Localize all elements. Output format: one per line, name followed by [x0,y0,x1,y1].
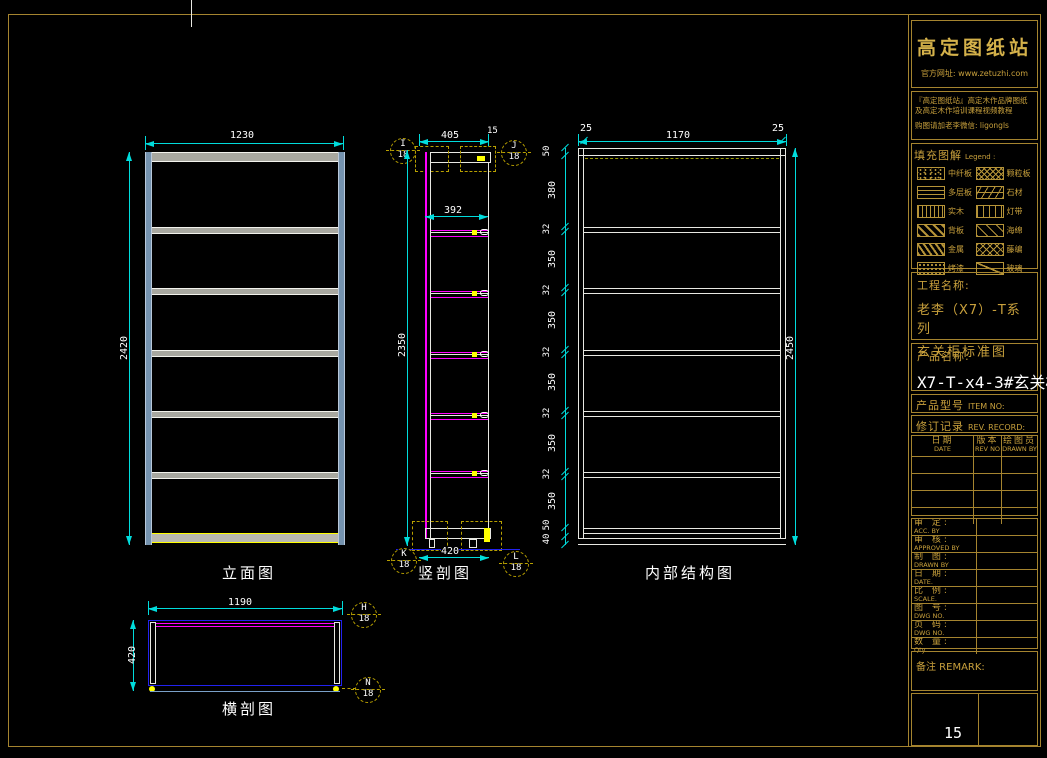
legend-item: 背板 [917,224,974,237]
hdash-pattern-swatch [917,186,945,199]
info-row: 图 号:DWG NO. [912,603,1037,620]
elevation-base [152,533,338,543]
site-logo: 高定图纸站 [912,33,1037,60]
remark-box: 备注 REMARK: [911,651,1038,691]
section-bottom-dim: 420 [441,547,459,557]
legend-item: 石材 [976,186,1033,199]
info-label-en: ACC. BY [914,528,976,535]
crop-mark [191,0,192,27]
product-value: X7-T-x4-3#玄关柜 [917,369,1032,393]
info-row: 页 码:DWG NO. [912,620,1037,637]
hatch-pattern-swatch [917,224,945,237]
elevation-left-panel [145,152,152,545]
info-row-label: 日 期:DATE. [912,570,977,586]
promo-line-3: 购图请加老李微信: ligongls [915,121,1034,131]
rev-empty-row [912,473,1037,490]
promo-line-2: 及高定木作培训课程视频教程 [915,106,1034,116]
project-box: 工程名称: 老李（X7）-T系列 玄关柜标准图 [911,272,1038,340]
section-top-dim: 405 [441,131,459,141]
legend-item: 灯带 [976,205,1033,218]
rev-table: 日期DATE 版本REV NO 绘图员DRAWN BY [911,435,1038,516]
plan-front-line [150,691,340,692]
border-bottom [8,746,1040,747]
border-left [8,14,9,747]
rev-record-en: REV. RECORD: [968,423,1025,432]
mesh-pattern-swatch [976,243,1004,256]
info-label-en: DWG NO. [914,613,976,620]
detail-balloon-N: N18 [355,677,381,703]
internal-left-wall [578,148,584,545]
promo-box: 『高定图纸站』高定木作品牌图纸 及高定木作培训课程视频教程 购图请加老李微信: … [911,91,1038,140]
chain-dim: 32 [542,276,552,304]
legend-item: 藤编 [976,243,1033,256]
chain-dim: 380 [548,176,558,204]
product-label: 产品名称: [917,348,1032,364]
info-value-cell [977,536,1037,552]
plan-left-panel [150,622,156,684]
detail-balloon-K: K18 [391,548,417,574]
info-row-label: 比 例:SCALE. [912,587,977,603]
rev-empty-cell [912,491,974,507]
item-no-box: 产品型号 ITEM NO: [911,394,1038,413]
section-height-dim: 2350 [398,325,408,365]
info-row-label: 图 号:DWG NO. [912,604,977,620]
scatter-pattern-swatch [976,224,1004,237]
rev-col-drawnby: 绘图员DRAWN BY [1002,436,1037,456]
item-no-en: ITEM NO: [968,402,1005,411]
legend-label: 背板 [948,226,964,235]
rev-col-revno: 版本REV NO [974,436,1002,456]
rev-table-header: 日期DATE 版本REV NO 绘图员DRAWN BY [912,436,1037,456]
titleblock-divider [908,14,909,747]
chain-dim: 32 [542,460,552,488]
section-label: 竖剖图 [418,562,472,583]
legend-item: 颗粒板 [976,167,1033,180]
internal-top-panel [578,148,786,156]
legend-item: 实木 [917,205,974,218]
chain-dim: 40 [542,525,552,553]
info-value-cell [977,519,1037,535]
section-side-panel [425,152,431,538]
page-box: 15 [911,693,1038,746]
legend-label: 多层板 [948,188,972,197]
legend-item: 多层板 [917,186,974,199]
vdash-pattern-swatch [976,205,1004,218]
legend-label: 实木 [948,207,964,216]
rev-empty-cell [912,474,974,490]
legend-label: 灯带 [1007,207,1023,216]
legend-title-en: Legend : [965,153,995,161]
legend-item: 海绵 [976,224,1033,237]
elevation-right-panel [338,152,345,545]
info-row: 日 期:DATE. [912,569,1037,586]
chain-dim: 350 [548,245,558,273]
detail-balloon-I: I18 [390,138,416,164]
legend-grid: 中纤板颗粒板多层板石材实木灯带背板海绵金属藤编烤漆玻璃 [914,163,1035,279]
info-row: 审 定:ACC. BY [912,519,1037,535]
info-label-en: APPROVED BY [914,545,976,552]
info-row: 审 核:APPROVED BY [912,535,1037,552]
internal-label: 内部结构图 [645,562,735,583]
grain-pattern-swatch [917,205,945,218]
section-top-small-dim: 15 [487,126,498,136]
rev-empty-cell [1002,474,1037,490]
product-box: 产品名称: X7-T-x4-3#玄关柜 [911,343,1038,391]
info-row-label: 页 码:DWG NO. [912,621,977,637]
rev-empty-cell [974,457,1002,473]
info-value-cell [977,587,1037,603]
legend-label: 海绵 [1007,226,1023,235]
internal-height-dim: 2450 [786,328,796,368]
elevation-label: 立面图 [222,562,276,583]
internal-bottom-panel [584,528,780,534]
chain-dim: 350 [548,368,558,396]
rev-empty-cell [1002,491,1037,507]
site-website: 官方网址: www.zetuzhi.com [912,68,1037,79]
rev-empty-cell [1002,457,1037,473]
info-row-label: 审 核:APPROVED BY [912,536,977,552]
rev-record-box: 修订记录 REV. RECORD: [911,415,1038,433]
legend-item: 中纤板 [917,167,974,180]
chain-dim: 32 [542,338,552,366]
chain-dim: 50 [542,137,552,165]
legend-label: 金属 [948,245,964,254]
elevation-top-panel [152,152,338,162]
info-label-en: DWG NO. [914,630,976,637]
project-name-line1: 老李（X7）-T系列 [917,299,1032,337]
plan-back-panel [156,623,334,627]
chain-dim: 32 [542,215,552,243]
info-row: 制 图:DRAWN BY [912,552,1037,569]
speckle-pattern-swatch [917,167,945,180]
info-value-cell [977,621,1037,637]
legend-label: 颗粒板 [1007,169,1031,178]
detail-balloon-L: L18 [503,551,529,577]
elevation-width-dim: 1230 [230,131,254,141]
legend-label: 中纤板 [948,169,972,178]
promo-line-1: 『高定图纸站』高定木作品牌图纸 [915,96,1034,106]
cad-drawing-sheet: 1230 2420 立面图 405 15 I18 J18 [0,0,1047,758]
info-row-label: 制 图:DRAWN BY [912,553,977,569]
elevation-height-dim: 2420 [120,328,130,368]
chain-dim: 350 [548,306,558,334]
legend-item: 金属 [917,243,974,256]
plan-label: 横剖图 [222,698,276,719]
legend-box: 填充图解 Legend : 中纤板颗粒板多层板石材实木灯带背板海绵金属藤编烤漆玻… [911,143,1038,269]
rev-empty-row [912,456,1037,473]
plan-width-dim: 1190 [228,598,252,608]
section-inner-dim: 392 [444,206,462,216]
info-value-cell [977,553,1037,569]
detail-balloon-H: H18 [351,602,377,628]
plan-body [148,620,342,686]
info-label-en: SCALE. [914,596,976,603]
legend-title: 填充图解 [914,147,962,163]
chain-dim: 350 [548,429,558,457]
info-value-cell [977,570,1037,586]
legend-label: 石材 [1007,188,1023,197]
logo-box: 高定图纸站 官方网址: www.zetuzhi.com [911,20,1038,88]
rev-empty-cell [974,491,1002,507]
internal-left-dim: 25 [580,124,592,134]
rev-record-label: 修订记录 [916,418,964,434]
info-label-en: DATE. [914,579,976,586]
legend-label: 藤编 [1007,245,1023,254]
border-top [8,14,1040,15]
remark-label: 备注 REMARK: [916,662,985,673]
plan-right-panel [334,622,340,684]
chain-dim: 32 [542,399,552,427]
project-label: 工程名称: [917,277,1032,293]
item-no-label: 产品型号 [916,397,964,413]
hatch2-pattern-swatch [917,243,945,256]
rev-empty-cell [912,457,974,473]
info-label-en: DRAWN BY [914,562,976,569]
info-row-label: 审 定:ACC. BY [912,519,977,535]
internal-right-dim: 25 [772,124,784,134]
page-number: 15 [944,724,962,742]
net-pattern-swatch [976,167,1004,180]
detail-balloon-J: J18 [501,140,527,166]
plan-height-dim: 420 [128,635,138,675]
rev-col-date: 日期DATE [912,436,974,456]
info-value-cell [977,604,1037,620]
rev-empty-row [912,490,1037,507]
info-row: 比 例:SCALE. [912,586,1037,603]
info-table: 审 定:ACC. BY审 核:APPROVED BY制 图:DRAWN BY日 … [911,518,1038,649]
rev-empty-cell [974,474,1002,490]
internal-width-dim: 1170 [666,131,690,141]
brick-pattern-swatch [976,186,1004,199]
